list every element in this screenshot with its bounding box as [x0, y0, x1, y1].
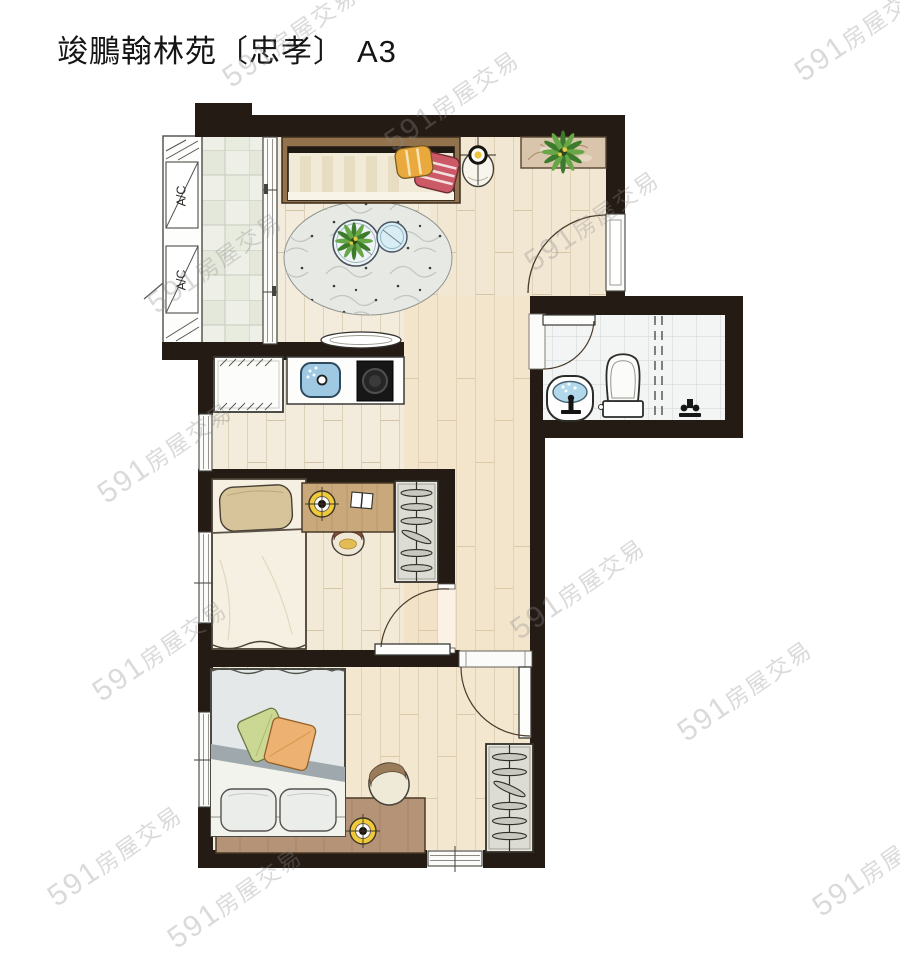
bathroom	[529, 314, 725, 421]
desk-1	[302, 483, 394, 532]
sofa	[282, 137, 461, 203]
bathroom-door-leaf	[543, 315, 595, 325]
bed-single	[212, 479, 306, 649]
wall	[725, 296, 743, 438]
floor-plan: A/C A/C	[0, 0, 900, 919]
wardrobe-1	[395, 481, 438, 582]
wall	[530, 367, 545, 420]
refrigerator	[214, 357, 283, 412]
wall	[606, 115, 625, 215]
kitchen-sink	[301, 363, 340, 397]
page-title: 竣鵬翰林苑〔忠孝〕A3	[57, 26, 397, 71]
ac-closet: A/C A/C	[163, 136, 202, 344]
kitchen-window	[199, 414, 212, 471]
wardrobe-2	[486, 744, 533, 852]
balcony-sliding-window	[263, 137, 277, 344]
project-name: 竣鵬翰林苑〔忠孝〕	[57, 34, 345, 69]
wall	[530, 296, 743, 315]
bedroom1-door-leaf	[375, 644, 450, 655]
balcony-tiles	[202, 136, 263, 343]
range-hood	[321, 332, 401, 348]
wall	[195, 103, 252, 137]
floor-plan-page: 竣鵬翰林苑〔忠孝〕A3	[0, 0, 900, 919]
stove	[357, 361, 393, 401]
console-table	[521, 130, 606, 173]
wall	[198, 356, 213, 415]
wall	[252, 115, 608, 137]
unit-label: A3	[357, 34, 397, 69]
kitchen-counter	[287, 357, 404, 404]
bedroom2-door-leaf	[519, 667, 531, 738]
wall	[438, 469, 455, 589]
sofa-cushion	[394, 145, 434, 180]
book	[351, 492, 373, 509]
bed-double	[211, 669, 345, 837]
ac-label-1: A/C	[174, 186, 188, 207]
wall	[530, 420, 743, 438]
balcony: A/C A/C	[144, 136, 263, 344]
bathroom-sink	[547, 376, 593, 421]
dimension-tick	[144, 283, 163, 299]
ac-label-2: A/C	[174, 270, 188, 291]
